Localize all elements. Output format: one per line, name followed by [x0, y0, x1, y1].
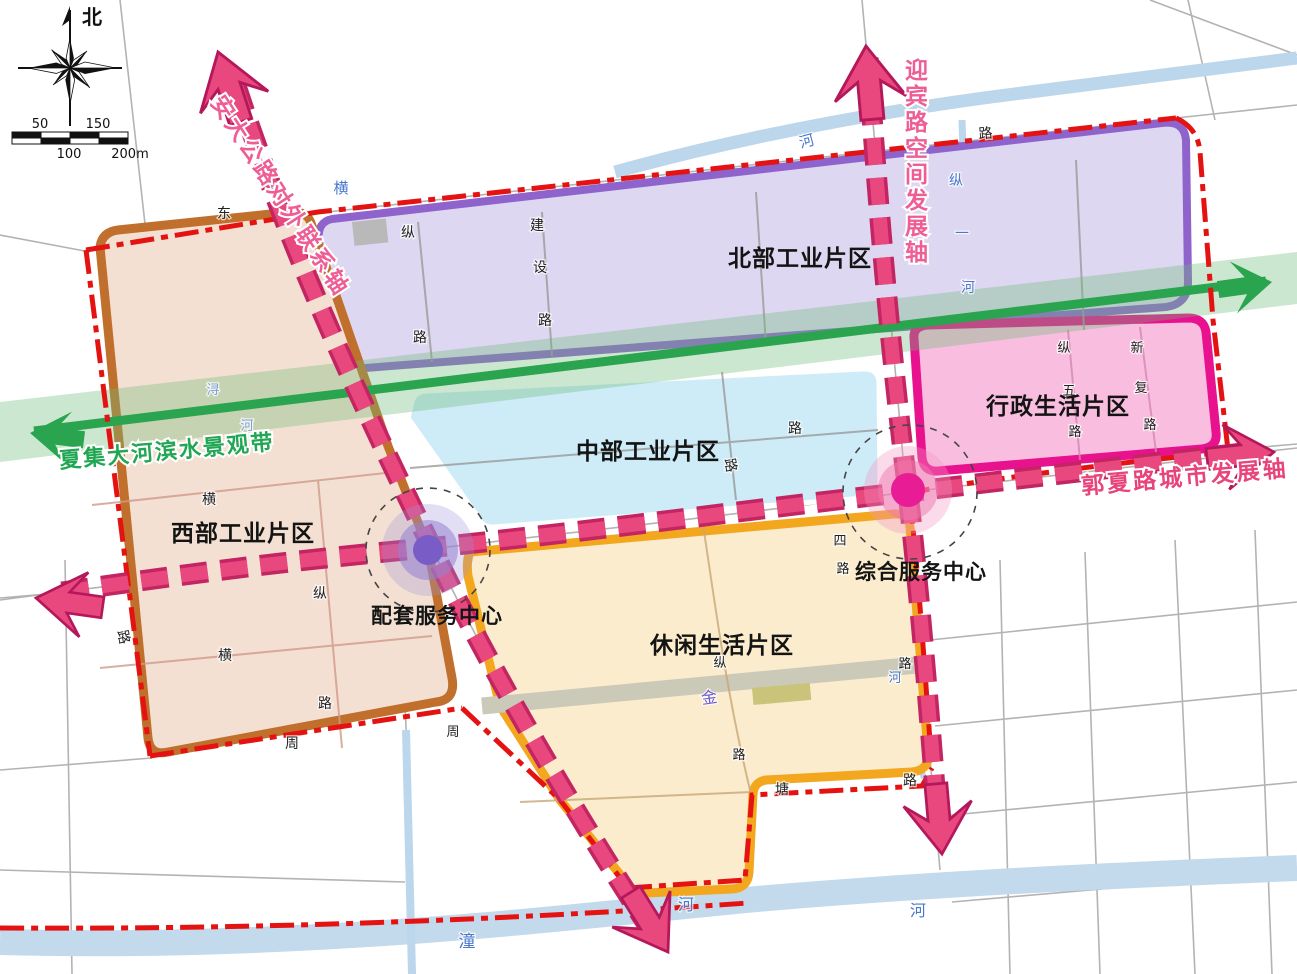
road-label: 河	[961, 280, 975, 296]
center-label-support: 配套服务中心	[371, 604, 503, 628]
road-label: 设	[533, 260, 547, 276]
road-label: 四	[833, 534, 846, 549]
zone-label-leisure: 休闲生活片区	[649, 633, 794, 659]
north-label: 北	[82, 5, 102, 29]
road-label: 路	[898, 656, 911, 672]
road-label: 路	[1143, 417, 1156, 433]
road-label: 路	[732, 747, 745, 763]
road-label: 一	[955, 226, 969, 242]
axis-label-yingbin: 迎宾路空间发展轴	[904, 57, 931, 266]
road-label: 周	[446, 725, 459, 740]
planning-map: 河横纵一河浔河潼河河河金东路纵路建设路横横纵路周路路路纵五路新复路四路纵路塘路路…	[0, 0, 1297, 974]
road-label: 纵	[401, 225, 415, 241]
road-label: 路	[721, 457, 739, 474]
road-label: 周	[285, 736, 299, 752]
road-label: 纵	[1057, 341, 1070, 356]
road-label: 路	[978, 125, 993, 142]
compass-rose-icon: 北	[18, 5, 122, 126]
zone-label-admin: 行政生活片区	[985, 393, 1130, 420]
road-label: 建	[530, 218, 544, 234]
svg-text:100: 100	[57, 147, 82, 162]
road-label: 路	[836, 561, 849, 577]
center-label-comprehensive: 综合服务中心	[855, 560, 987, 584]
road-label: 横	[202, 492, 216, 508]
road-label: 纵	[313, 586, 327, 602]
zone-label-central: 中部工业片区	[576, 438, 720, 465]
road-label: 横	[218, 648, 232, 664]
svg-text:150: 150	[86, 117, 111, 132]
road-label: 路	[114, 629, 133, 646]
road-label: 新	[1130, 340, 1143, 356]
comprehensive-center-node	[891, 473, 925, 507]
road-label: 路	[788, 421, 802, 437]
road-label: 路	[413, 330, 427, 346]
zone-label-west: 西部工业片区	[171, 520, 315, 547]
yingbin-arrow-down-icon	[902, 781, 976, 857]
svg-text:50: 50	[32, 117, 49, 132]
road-label: 河	[910, 901, 926, 920]
road-label: 河	[678, 895, 694, 914]
zone-label-north: 北部工业片区	[728, 245, 872, 272]
road-label: 路	[1068, 424, 1081, 440]
scale-bar: 50 150 100 200m	[12, 117, 149, 162]
road-label: 金	[700, 687, 719, 708]
road-label: 路	[538, 313, 552, 329]
road-label: 塘	[775, 782, 789, 798]
road-label: 横	[333, 179, 348, 197]
road-label: 路	[903, 773, 917, 789]
zones	[100, 123, 1216, 893]
road-label: 东	[217, 206, 231, 222]
road-label: 复	[1134, 381, 1147, 396]
building-block-icon	[352, 218, 388, 245]
road-label: 潼	[459, 932, 476, 952]
road-label: 浔	[206, 383, 219, 398]
road-label: 河	[797, 131, 816, 152]
road-label: 路	[318, 696, 332, 712]
support-center-node	[413, 535, 443, 565]
guoxia-arrow-left-icon	[31, 566, 107, 640]
road-label: 纵	[949, 173, 963, 189]
svg-text:200m: 200m	[111, 147, 148, 162]
road-label: 河	[888, 671, 901, 686]
